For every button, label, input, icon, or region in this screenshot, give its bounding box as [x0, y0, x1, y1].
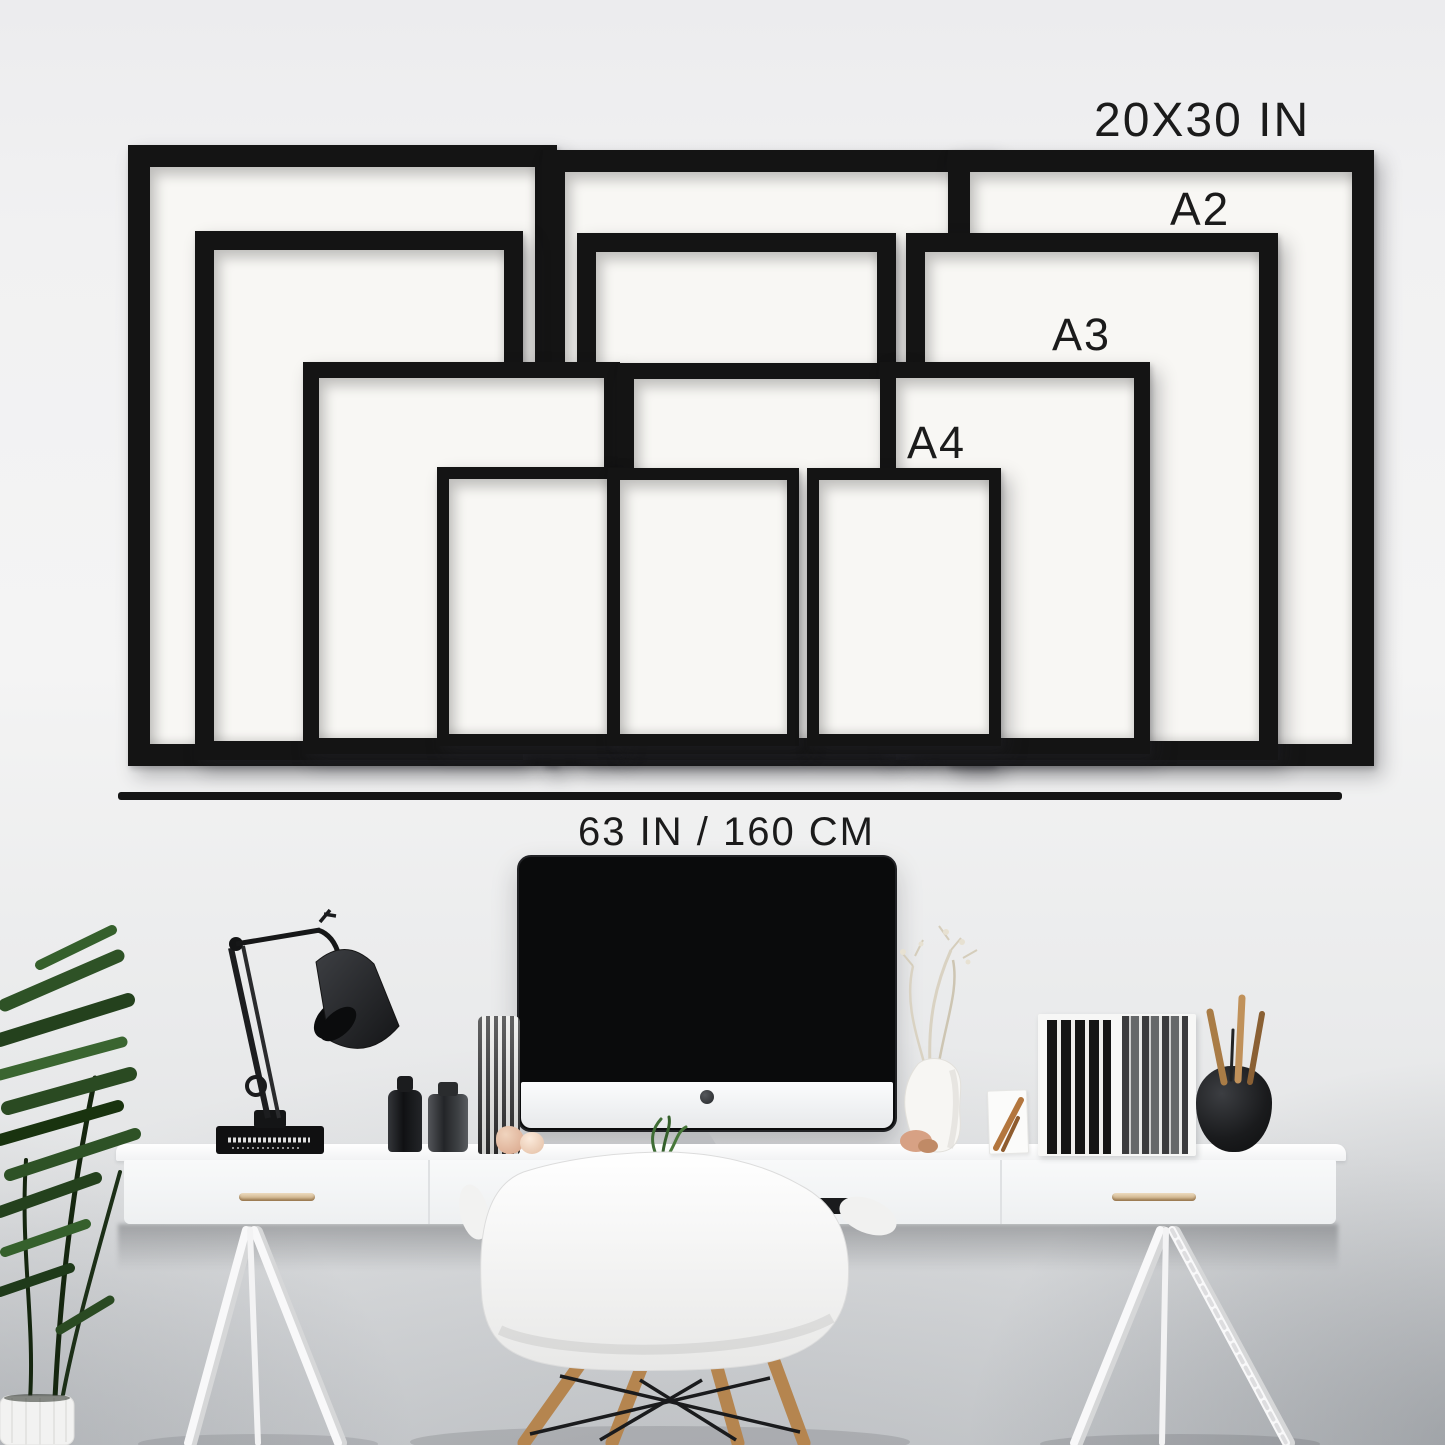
frame-size-guide-mockup: 20X30 IN A2 A3 A4 63 IN / 160 CM: [0, 0, 1445, 1445]
chair-right-arm-tip: [834, 1189, 902, 1243]
brush-sticks: [1210, 998, 1262, 1082]
scene-illustration: [0, 0, 1445, 1445]
desk-lamp: [216, 910, 399, 1154]
dried-branch-vase: [900, 926, 977, 1153]
green-sprigs: [653, 1117, 686, 1152]
wood-figurine: [996, 1100, 1021, 1150]
shell-chair: [454, 1152, 902, 1443]
potted-plant: [0, 930, 135, 1445]
